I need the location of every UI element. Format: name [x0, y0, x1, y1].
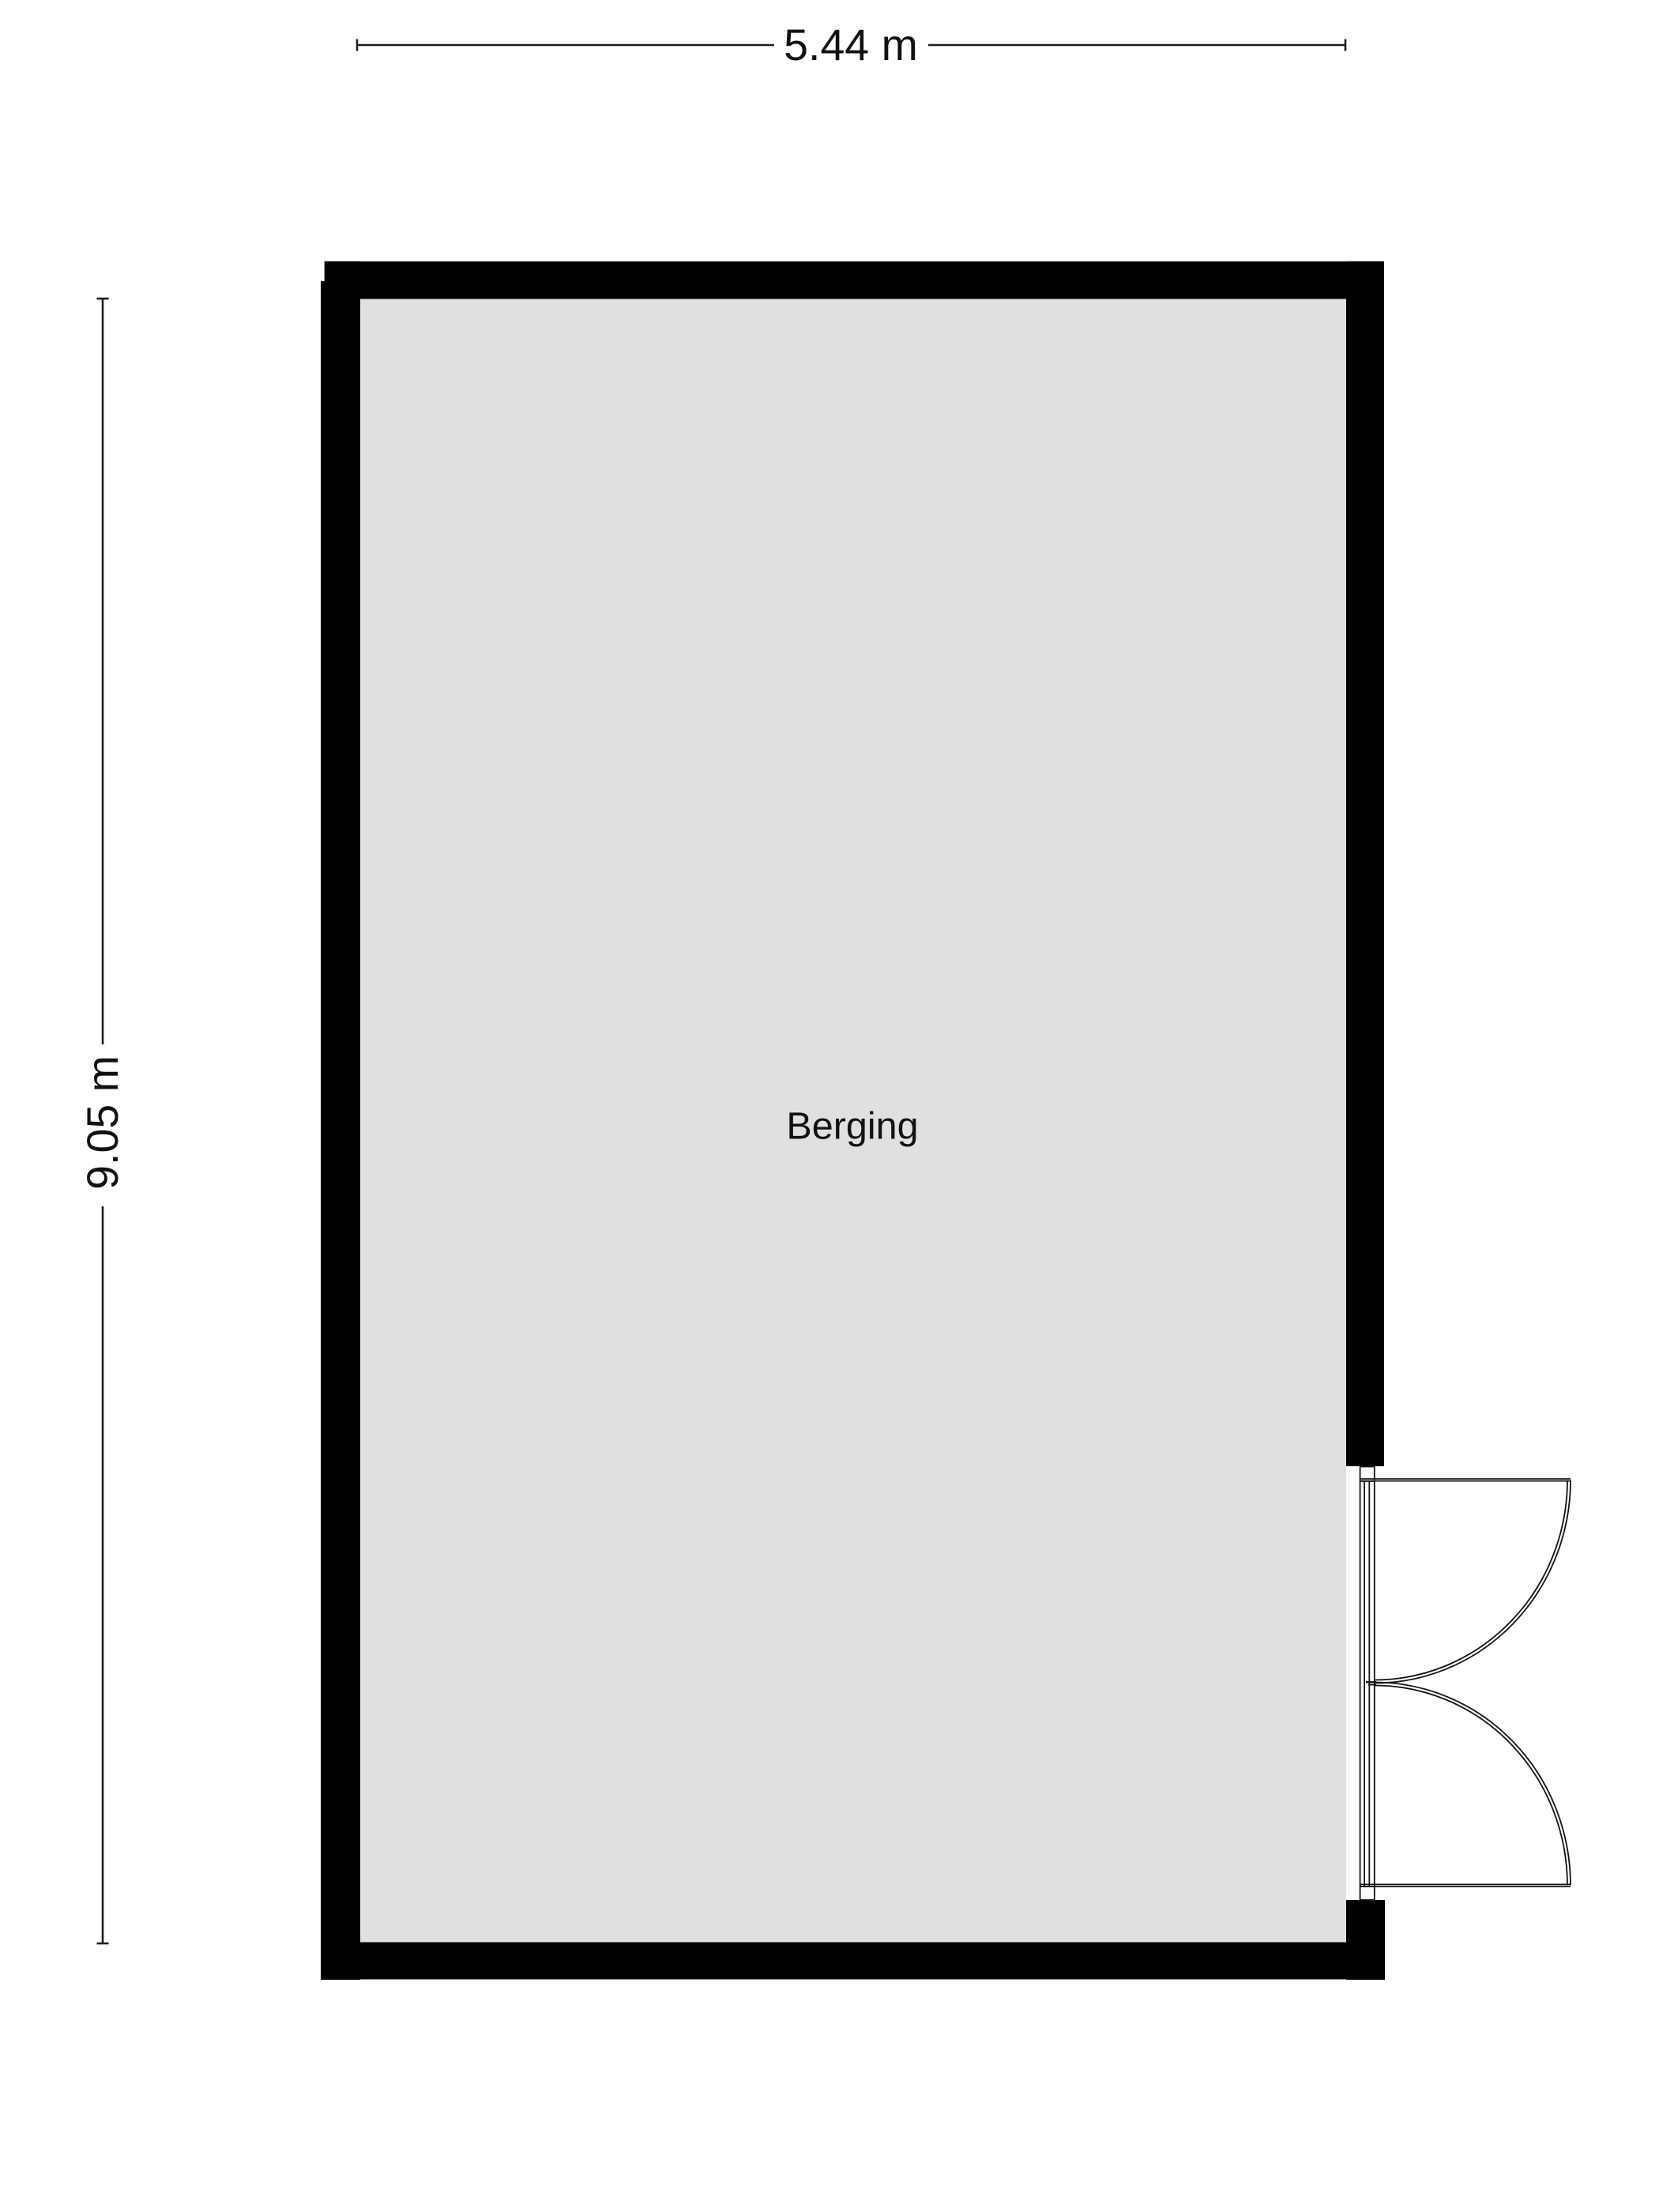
svg-text:Berging: Berging	[786, 1105, 918, 1148]
svg-text:9.05 m: 9.05 m	[78, 1055, 127, 1190]
svg-text:5.44 m: 5.44 m	[784, 21, 918, 70]
